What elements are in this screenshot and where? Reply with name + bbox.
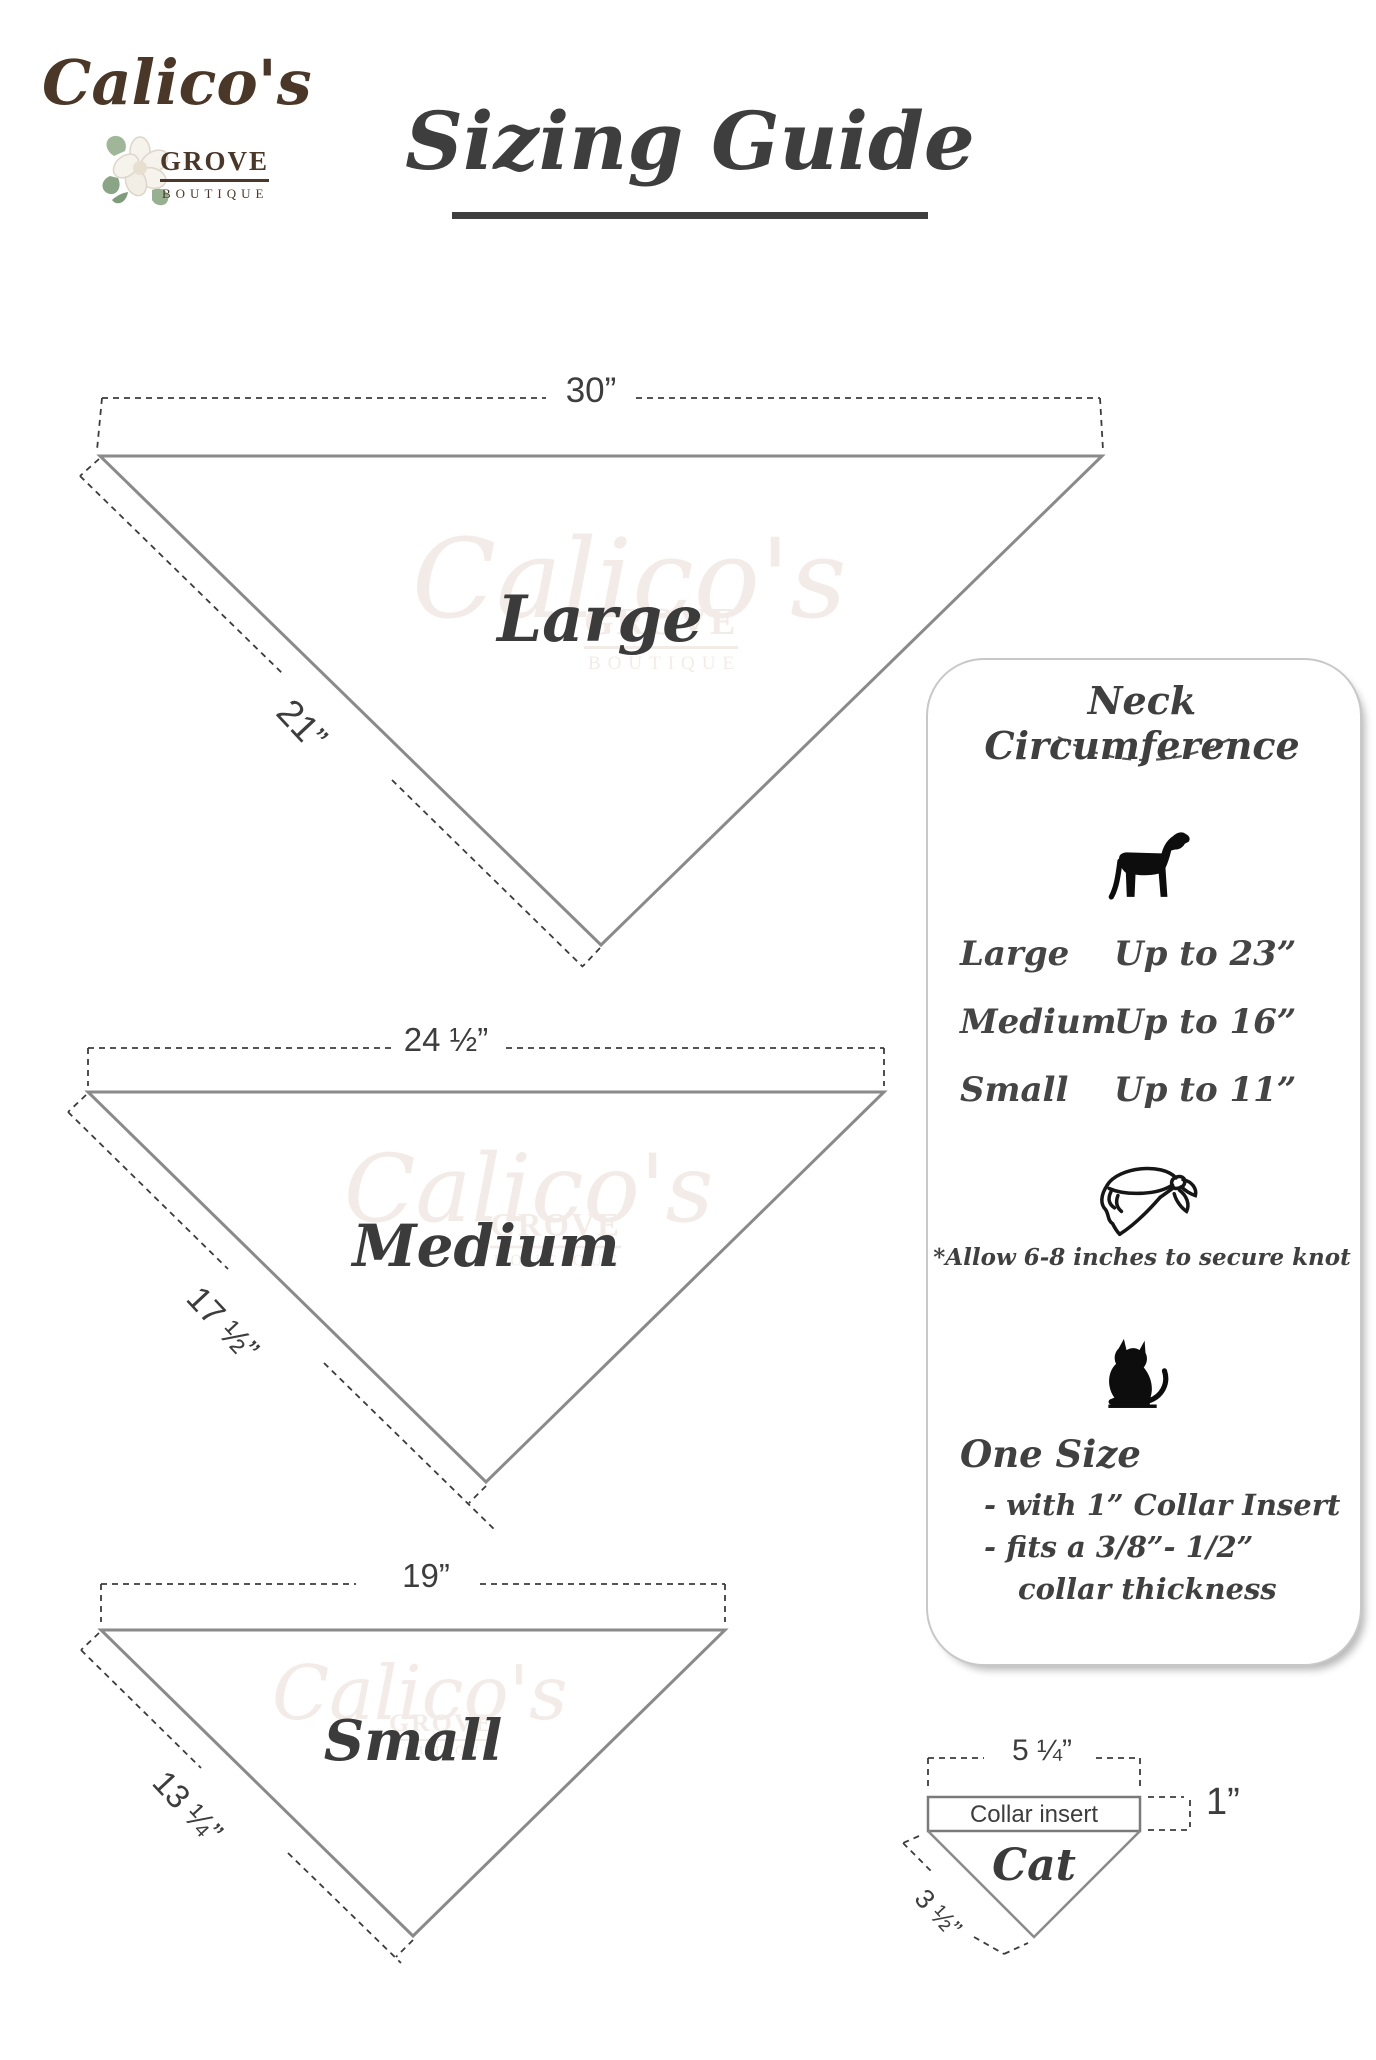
page-title: Sizing Guide: [400, 76, 980, 206]
dog-size-row-label: Large: [960, 934, 1069, 974]
one-size-line-3: collar thickness: [1018, 1572, 1277, 1606]
medium-size-label: Medium: [330, 1212, 642, 1280]
medium-bandana-outline: [68, 1048, 884, 1532]
sizing-guide-page: Calico's GROVE BOUTIQUE Calico's GROVE B…: [0, 0, 1376, 2060]
bandana-icon: [1088, 1156, 1220, 1250]
small-size-label: Small: [288, 1708, 538, 1774]
cat-top-width-label: 5 ¼”: [994, 1734, 1090, 1767]
dog-icon: [1092, 820, 1208, 908]
logo-grove: GROVE: [160, 146, 269, 182]
one-size-heading: One Size: [960, 1432, 1141, 1476]
collar-insert-label: Collar insert: [928, 1797, 1140, 1833]
cat-size-label: Cat: [984, 1840, 1084, 1891]
dog-size-row-value: Up to 11”: [1114, 1070, 1296, 1110]
dog-size-row-label: Medium: [960, 1002, 1117, 1042]
cat-icon: [1098, 1328, 1180, 1418]
logo-brand-name: Calico's: [42, 46, 312, 119]
medium-top-width-label: 24 ½”: [386, 1022, 506, 1058]
one-size-line-2: - fits a 3/8”- 1/2”: [984, 1530, 1253, 1564]
dog-size-row-value: Up to 23”: [1114, 934, 1296, 974]
title-underline: [452, 212, 928, 219]
large-size-label: Large: [450, 582, 750, 657]
knot-allowance-note: *Allow 6-8 inches to secure knot: [926, 1244, 1358, 1271]
large-top-width-label: 30”: [546, 372, 636, 411]
dog-size-row-label: Small: [960, 1070, 1068, 1110]
small-top-width-label: 19”: [372, 1558, 480, 1594]
one-size-line-1: - with 1” Collar Insert: [984, 1488, 1340, 1522]
logo-boutique: BOUTIQUE: [162, 186, 268, 202]
panel-title: Neck Circumference: [926, 678, 1358, 768]
dog-size-row-value: Up to 16”: [1114, 1002, 1296, 1042]
collar-insert-height-label: 1”: [1206, 1782, 1240, 1824]
